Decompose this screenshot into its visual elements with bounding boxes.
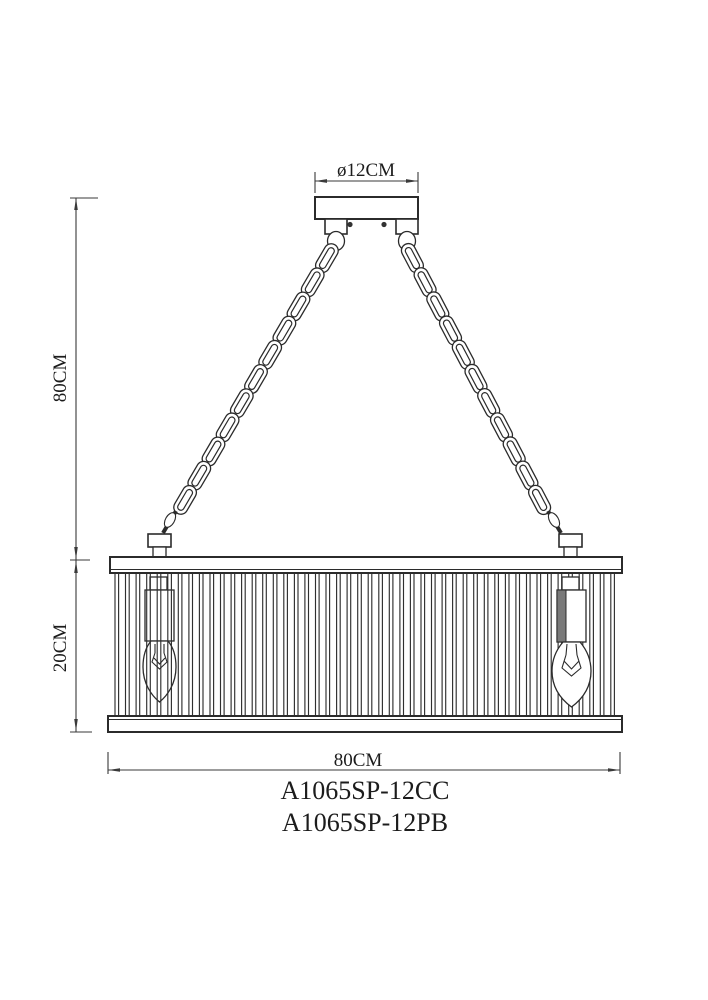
- model-numbers: A1065SP-12CC A1065SP-12PB: [280, 776, 449, 837]
- ceiling-canopy: [315, 197, 418, 251]
- chain-clip-left: [162, 511, 178, 533]
- screw-icon: [381, 222, 386, 227]
- screw-icon: [347, 222, 352, 227]
- chain-height-label: 80CM: [50, 354, 71, 403]
- dimension-shade-height: 20CM: [50, 560, 92, 732]
- socket-neck: [562, 577, 579, 590]
- shade-connector-left: [148, 534, 171, 559]
- canopy-plate: [315, 197, 418, 219]
- dimension-chain-height: 80CM: [50, 198, 98, 560]
- arrowhead-down: [74, 547, 78, 559]
- drawing-page: ø12CM: [0, 0, 708, 1000]
- technical-drawing-canvas: ø12CM: [0, 0, 708, 1000]
- shade-height-label: 20CM: [50, 624, 71, 673]
- arrowhead-up: [74, 561, 78, 573]
- arrowhead-right: [608, 768, 620, 772]
- model-number-cc: A1065SP-12CC: [280, 776, 449, 805]
- shade-width-label: 80CM: [334, 750, 383, 771]
- dimension-shade-width: 80CM: [108, 750, 620, 774]
- arrowhead-left: [108, 768, 120, 772]
- dimension-canopy-diameter: ø12CM: [315, 160, 418, 193]
- socket-shading: [557, 590, 566, 642]
- canopy-diameter-label: ø12CM: [337, 160, 395, 181]
- arrowhead-right: [406, 179, 418, 183]
- shade-frame: [110, 557, 622, 573]
- shade-bottom-rail: [108, 716, 622, 732]
- connector-cap: [559, 534, 582, 547]
- socket-neck: [150, 577, 167, 590]
- arrowhead-up: [74, 198, 78, 210]
- arrowhead-left: [315, 179, 327, 183]
- suspension-chain-right: [399, 241, 553, 517]
- connector-cap: [148, 534, 171, 547]
- crystal-rod-shade: [115, 574, 614, 716]
- arrowhead-down: [74, 719, 78, 731]
- model-number-pb: A1065SP-12PB: [282, 808, 448, 837]
- candle-right: [552, 577, 591, 707]
- socket-body: [145, 590, 174, 641]
- shade-connector-right: [559, 534, 582, 559]
- shade-top-rail: [110, 557, 622, 573]
- chain-clip-right: [546, 511, 562, 533]
- suspension-chain-left: [171, 241, 341, 517]
